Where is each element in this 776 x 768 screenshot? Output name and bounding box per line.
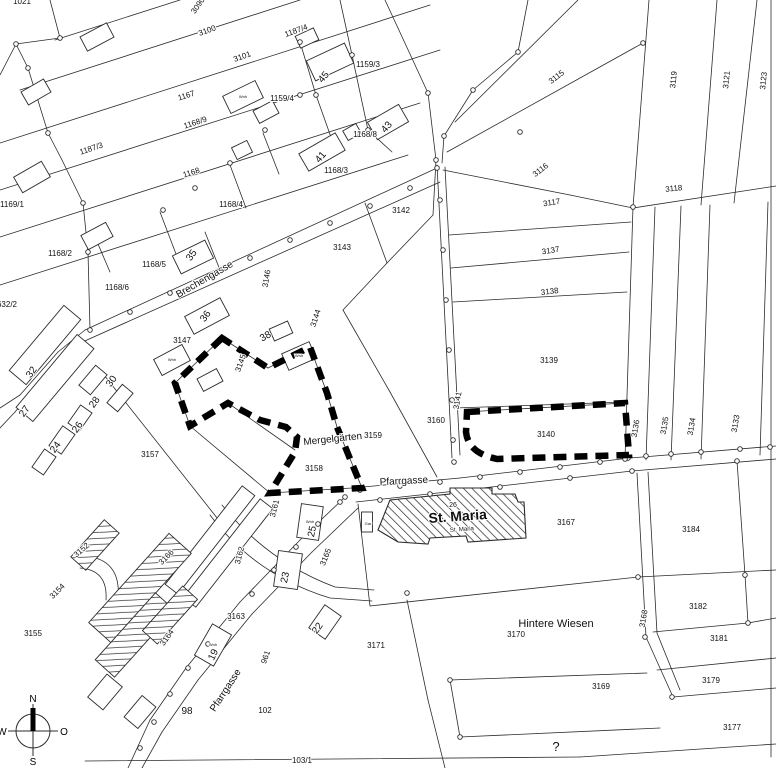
survey-point	[630, 469, 635, 474]
survey-point	[438, 198, 443, 203]
survey-point	[442, 134, 447, 139]
survey-point	[631, 205, 636, 210]
survey-point	[643, 635, 648, 640]
parcel-label: 3159	[364, 431, 382, 440]
survey-point	[408, 186, 413, 191]
parcel-label: 3142	[392, 206, 410, 215]
survey-point	[471, 88, 476, 93]
parcel-label: 1168/2	[48, 249, 72, 258]
parcel-label: 3181	[710, 634, 728, 643]
parcel-label: 3158	[305, 464, 323, 473]
parcel-label: 632/2	[0, 300, 18, 309]
survey-point	[448, 678, 453, 683]
building-type-label: Gar	[365, 521, 372, 526]
survey-point	[81, 201, 86, 206]
survey-point	[444, 298, 449, 303]
parcel-label: 1168/6	[105, 283, 129, 292]
survey-point	[294, 545, 299, 550]
parcel-label: 1168/8	[353, 130, 377, 139]
survey-point	[152, 720, 157, 725]
survey-point	[316, 522, 321, 527]
map-canvas: 10213090310031011187/41159/31159/4116711…	[0, 0, 776, 768]
survey-point	[58, 36, 63, 41]
parcel-label: 1168/3	[324, 166, 348, 175]
survey-point	[26, 66, 31, 71]
survey-point	[328, 221, 333, 226]
survey-point	[452, 460, 457, 465]
parcel-label: 3170	[507, 630, 525, 639]
parcel-label: 3160	[427, 416, 445, 425]
survey-point	[478, 475, 483, 480]
building-type-label: Wnh	[168, 357, 176, 362]
survey-point	[743, 573, 748, 578]
house-number: 98	[181, 706, 193, 717]
parcel-label: 102	[258, 706, 272, 715]
survey-point	[263, 128, 268, 133]
survey-point	[168, 692, 173, 697]
parcel-label: 3171	[367, 641, 385, 650]
parcel-label: 3182	[689, 602, 707, 611]
survey-point	[438, 480, 443, 485]
parcel-label: 3140	[537, 430, 555, 439]
parcel-label: 3121	[721, 70, 732, 89]
parcel-label: 3179	[702, 676, 720, 685]
survey-point	[558, 465, 563, 470]
survey-point	[434, 158, 439, 163]
survey-point	[193, 186, 198, 191]
survey-point	[641, 41, 646, 46]
parcel-label: 103/1	[292, 756, 313, 765]
survey-point	[250, 592, 255, 597]
place-label: Hintere Wiesen	[518, 618, 593, 630]
parcel-label: 3139	[540, 356, 558, 365]
parcel-label: 1021	[13, 0, 31, 6]
parcel-label: 3184	[682, 525, 700, 534]
place-label: ?	[552, 739, 559, 754]
parcel-label: 3157	[141, 450, 159, 459]
parcel-label: 1168/5	[142, 260, 166, 269]
survey-point	[636, 575, 641, 580]
survey-point	[14, 42, 19, 47]
survey-point	[228, 161, 233, 166]
parcel-label: 3167	[557, 518, 575, 527]
survey-point	[298, 40, 303, 45]
survey-point	[426, 91, 431, 96]
survey-point	[435, 166, 440, 171]
parcel-label: 3119	[668, 70, 679, 89]
survey-point	[451, 438, 456, 443]
survey-point	[458, 735, 463, 740]
cadastral-map: 10213090310031011187/41159/31159/4116711…	[0, 0, 776, 768]
parcel-label: 1169/1	[0, 200, 24, 209]
survey-point	[378, 498, 383, 503]
survey-point	[669, 452, 674, 457]
parcel-label: 1168/4	[219, 200, 243, 209]
survey-point	[516, 50, 521, 55]
survey-point	[86, 250, 91, 255]
survey-point	[670, 695, 675, 700]
parcel-label: 1159/4	[270, 94, 294, 103]
survey-point	[518, 130, 523, 135]
survey-point	[314, 93, 319, 98]
compass-label-east: O	[60, 727, 68, 738]
survey-point	[768, 445, 773, 450]
survey-point	[88, 328, 93, 333]
compass-north-needle	[31, 708, 36, 731]
parcel-label: 3177	[723, 723, 741, 732]
parcel-label: 3169	[592, 682, 610, 691]
parcel-label: 3118	[665, 183, 684, 194]
survey-point	[338, 500, 343, 505]
survey-point	[428, 492, 433, 497]
survey-point	[498, 485, 503, 490]
survey-point	[186, 666, 191, 671]
parcel-label: 3123	[758, 71, 769, 90]
survey-point	[350, 53, 355, 58]
survey-point	[128, 310, 133, 315]
survey-point	[518, 470, 523, 475]
survey-point	[644, 454, 649, 459]
survey-point	[161, 208, 166, 213]
survey-point	[568, 476, 573, 481]
compass-label-south: S	[30, 757, 37, 768]
survey-point	[288, 238, 293, 243]
compass-label-north: N	[29, 694, 36, 705]
survey-point	[598, 460, 603, 465]
survey-point	[168, 291, 173, 296]
parcel-label: 3155	[24, 629, 42, 638]
building-type-label: Wnh	[209, 642, 217, 647]
survey-point	[746, 621, 751, 626]
compass-label-west: W	[0, 727, 7, 738]
parcel-label: 3143	[333, 243, 351, 252]
survey-point	[735, 459, 740, 464]
survey-point	[738, 447, 743, 452]
parcel-label: 1159/3	[356, 60, 380, 69]
parcel-label: 3147	[173, 336, 191, 345]
survey-point	[441, 248, 446, 253]
building-type-label: Wnh	[306, 519, 314, 524]
survey-point	[699, 450, 704, 455]
survey-point	[368, 204, 373, 209]
building-type-label: Wnh	[295, 353, 303, 358]
survey-point	[46, 131, 51, 136]
survey-point	[405, 591, 410, 596]
survey-point	[248, 256, 253, 261]
survey-point	[447, 348, 452, 353]
parcel-label: 3163	[227, 612, 245, 621]
survey-point	[298, 93, 303, 98]
survey-point	[343, 495, 348, 500]
survey-point	[138, 746, 143, 751]
building-type-label: Wnh	[239, 94, 247, 99]
survey-point	[272, 568, 277, 573]
